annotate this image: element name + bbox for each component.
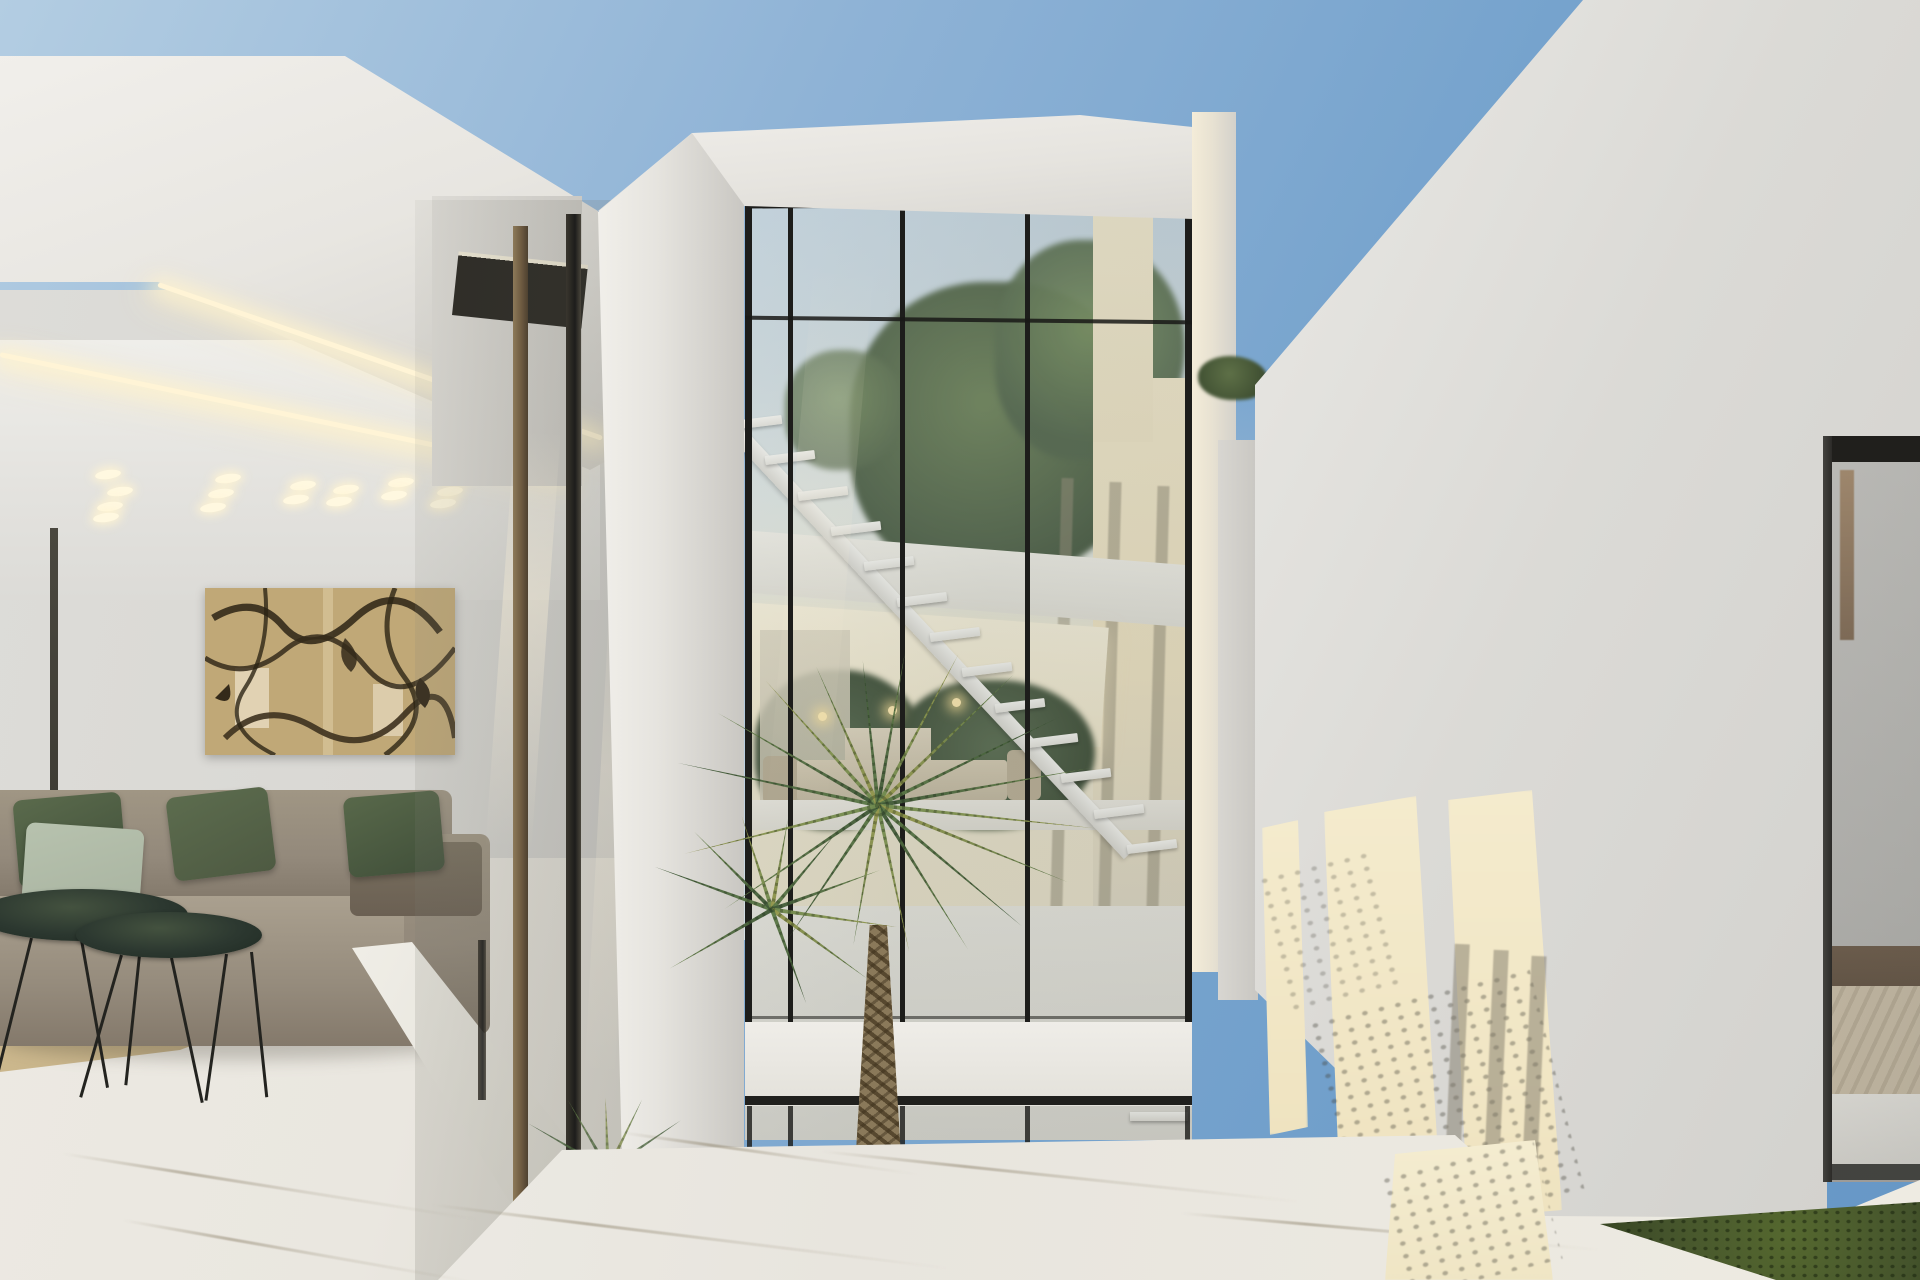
marble-vein [821,1150,1299,1203]
marble-vein [62,1152,477,1221]
villa-render-scene [0,0,1920,1280]
marble-veins [0,0,1920,1280]
marble-vein [432,1203,948,1269]
marble-vein [621,1131,918,1176]
marble-vein [122,1219,477,1280]
